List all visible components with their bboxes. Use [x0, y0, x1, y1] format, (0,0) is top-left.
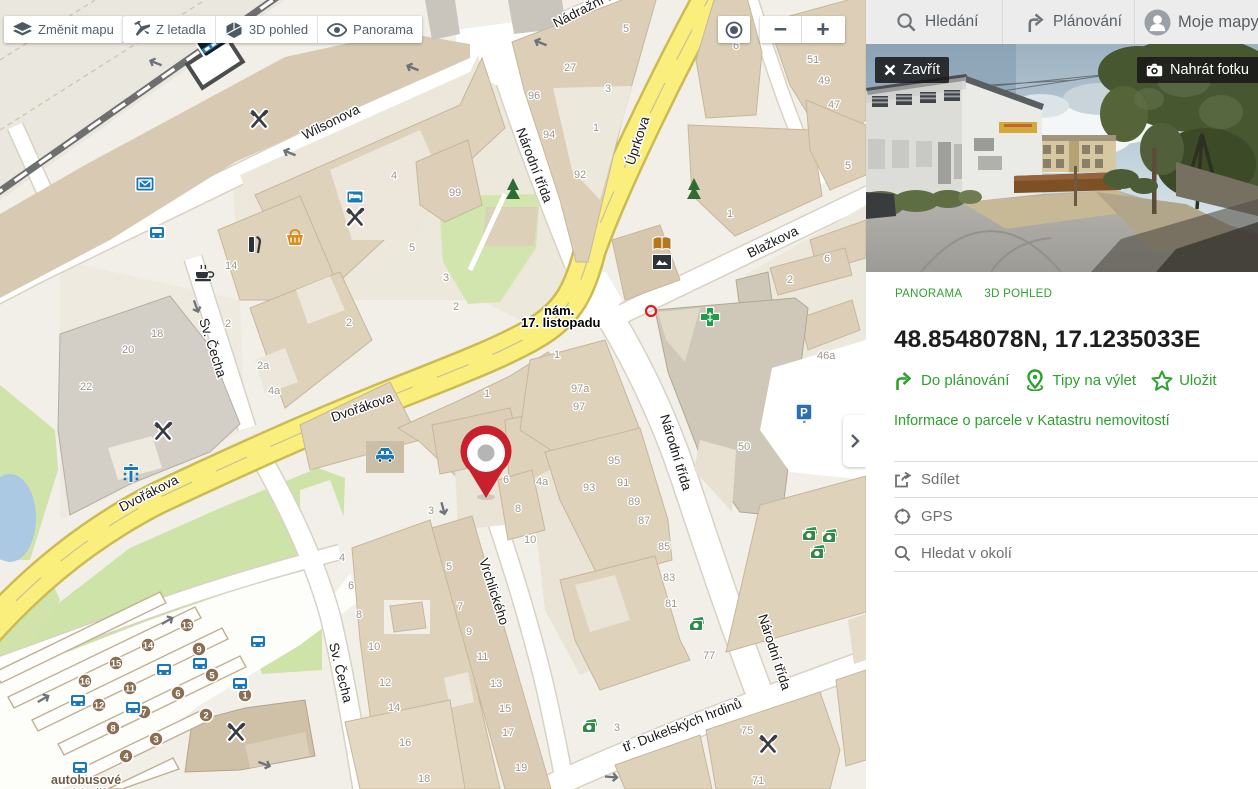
svg-text:18: 18	[418, 773, 430, 785]
svg-text:6: 6	[348, 580, 354, 592]
svg-text:14: 14	[143, 640, 154, 651]
svg-text:75: 75	[741, 725, 753, 737]
svg-text:2: 2	[225, 318, 231, 330]
svg-text:14: 14	[225, 260, 237, 272]
svg-text:8: 8	[515, 503, 521, 515]
svg-text:4a: 4a	[268, 385, 281, 397]
svg-text:6: 6	[503, 474, 509, 486]
svg-text:1: 1	[484, 388, 490, 400]
svg-text:20: 20	[122, 344, 134, 356]
svg-text:4: 4	[339, 552, 345, 564]
svg-text:17. listopadu: 17. listopadu	[521, 315, 601, 330]
svg-text:8: 8	[356, 609, 362, 621]
svg-text:11: 11	[125, 683, 136, 694]
svg-text:19: 19	[515, 762, 527, 774]
svg-text:50: 50	[738, 441, 750, 453]
svg-text:83: 83	[663, 572, 675, 584]
svg-text:91: 91	[617, 477, 629, 489]
svg-text:12: 12	[379, 677, 391, 689]
svg-text:8: 8	[110, 723, 115, 734]
svg-text:92: 92	[574, 169, 586, 181]
svg-text:4a: 4a	[536, 476, 549, 488]
svg-text:97a: 97a	[571, 383, 590, 395]
svg-text:13: 13	[490, 678, 502, 690]
svg-text:10: 10	[524, 534, 536, 546]
svg-text:9: 9	[196, 644, 201, 655]
svg-text:94: 94	[543, 129, 555, 141]
svg-text:1: 1	[593, 122, 599, 134]
svg-text:2: 2	[787, 274, 793, 286]
svg-text:16: 16	[399, 737, 411, 749]
svg-text:46a: 46a	[817, 350, 836, 362]
svg-text:87: 87	[638, 515, 650, 527]
svg-text:16: 16	[80, 676, 91, 687]
svg-text:11: 11	[477, 651, 488, 663]
svg-text:71: 71	[752, 775, 764, 787]
svg-text:7: 7	[457, 601, 463, 613]
svg-text:51: 51	[807, 54, 819, 66]
svg-text:15: 15	[111, 658, 122, 669]
svg-text:17: 17	[502, 727, 514, 739]
svg-text:3: 3	[153, 734, 158, 745]
svg-text:27: 27	[564, 62, 576, 74]
svg-text:4: 4	[123, 751, 129, 762]
svg-text:2: 2	[453, 301, 459, 313]
svg-text:9: 9	[466, 626, 472, 638]
svg-text:99: 99	[449, 187, 461, 199]
svg-text:96: 96	[528, 90, 540, 102]
svg-text:3: 3	[428, 505, 434, 517]
svg-text:7: 7	[141, 707, 146, 718]
svg-text:14: 14	[388, 702, 400, 714]
svg-text:12: 12	[94, 700, 105, 711]
svg-text:81: 81	[665, 598, 677, 610]
svg-text:1: 1	[242, 690, 248, 701]
svg-text:85: 85	[658, 541, 670, 553]
svg-text:95: 95	[608, 455, 620, 467]
svg-text:47: 47	[828, 99, 840, 111]
svg-text:P: P	[800, 408, 808, 420]
svg-text:5: 5	[409, 242, 415, 254]
svg-text:15: 15	[499, 703, 511, 715]
svg-text:10: 10	[368, 641, 380, 653]
svg-text:2a: 2a	[257, 360, 270, 372]
svg-text:2: 2	[346, 317, 352, 329]
svg-text:2: 2	[203, 710, 208, 721]
svg-text:autobusové: autobusové	[51, 773, 121, 787]
svg-text:5: 5	[845, 160, 851, 172]
svg-text:5: 5	[623, 23, 629, 35]
svg-text:4: 4	[391, 170, 397, 182]
svg-text:1: 1	[554, 349, 560, 361]
svg-text:89: 89	[628, 496, 640, 508]
svg-text:77: 77	[703, 650, 715, 662]
svg-text:93: 93	[583, 482, 595, 494]
svg-text:5: 5	[209, 670, 215, 681]
svg-text:18: 18	[151, 328, 163, 340]
svg-text:3: 3	[443, 272, 449, 284]
svg-text:5: 5	[446, 561, 452, 573]
svg-text:3: 3	[614, 722, 620, 734]
svg-text:22: 22	[80, 381, 92, 393]
svg-text:3: 3	[605, 83, 611, 95]
svg-text:1: 1	[727, 208, 733, 220]
svg-text:49: 49	[818, 75, 830, 87]
svg-text:6: 6	[175, 688, 180, 699]
svg-text:6: 6	[824, 253, 830, 265]
svg-text:13: 13	[182, 620, 193, 631]
svg-text:97: 97	[573, 401, 585, 413]
